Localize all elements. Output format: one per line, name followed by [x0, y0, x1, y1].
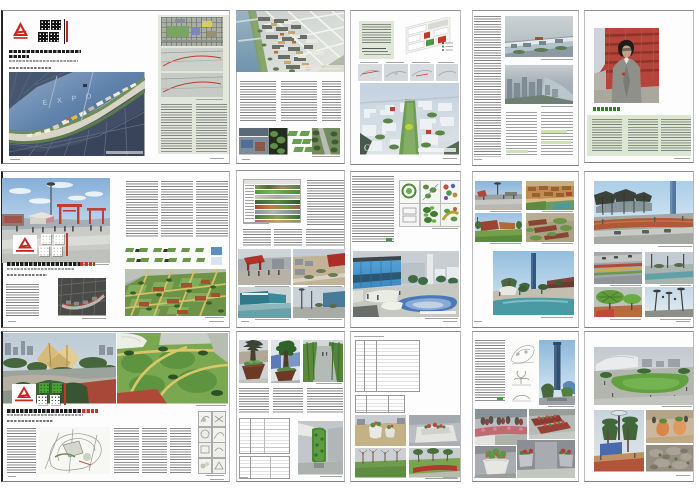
svg-text:C: C — [364, 143, 370, 153]
